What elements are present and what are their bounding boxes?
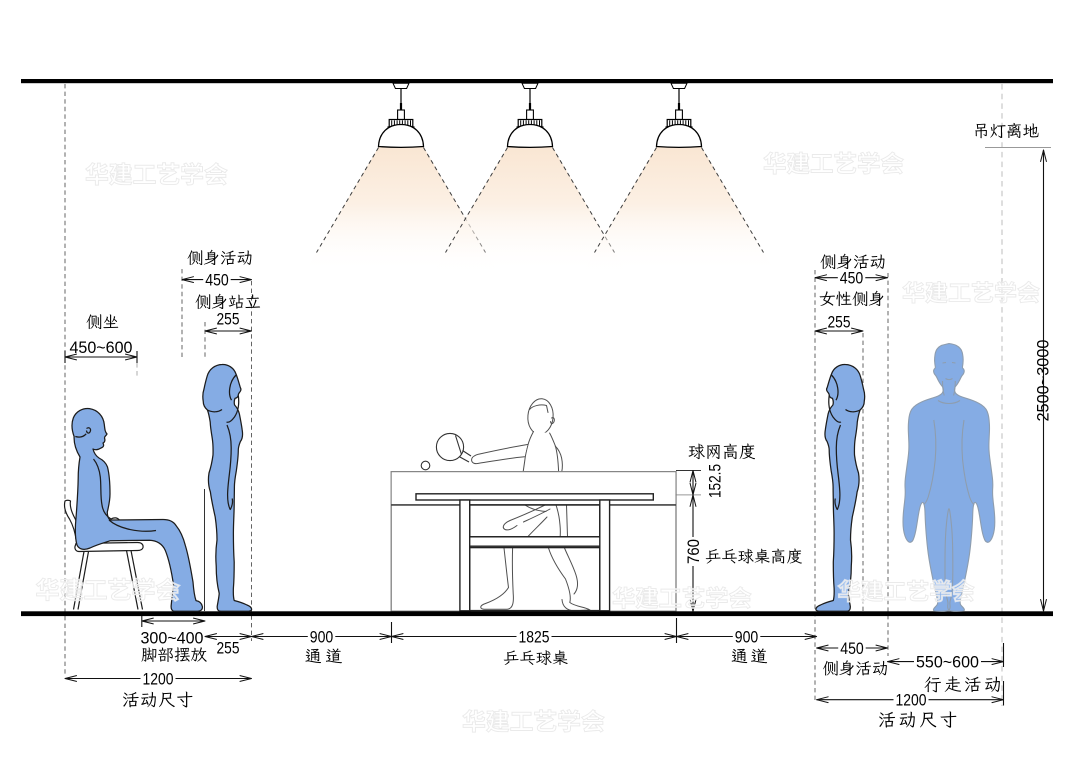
svg-text:550~600: 550~600 xyxy=(916,654,979,672)
svg-text:450: 450 xyxy=(840,270,864,288)
svg-text:900: 900 xyxy=(735,628,759,646)
svg-text:2500~3000: 2500~3000 xyxy=(1034,340,1052,422)
svg-text:1200: 1200 xyxy=(143,670,174,688)
svg-text:760: 760 xyxy=(685,539,703,564)
svg-text:900: 900 xyxy=(310,628,334,646)
svg-text:450: 450 xyxy=(205,272,229,290)
svg-text:1825: 1825 xyxy=(519,628,550,646)
svg-text:1200: 1200 xyxy=(896,692,927,710)
svg-text:450: 450 xyxy=(840,640,864,658)
svg-text:450~600: 450~600 xyxy=(70,339,133,357)
svg-text:255: 255 xyxy=(828,313,851,331)
svg-text:255: 255 xyxy=(217,310,240,328)
svg-text:300~400: 300~400 xyxy=(141,629,204,647)
svg-text:152.5: 152.5 xyxy=(706,464,724,498)
svg-text:255: 255 xyxy=(217,639,240,657)
